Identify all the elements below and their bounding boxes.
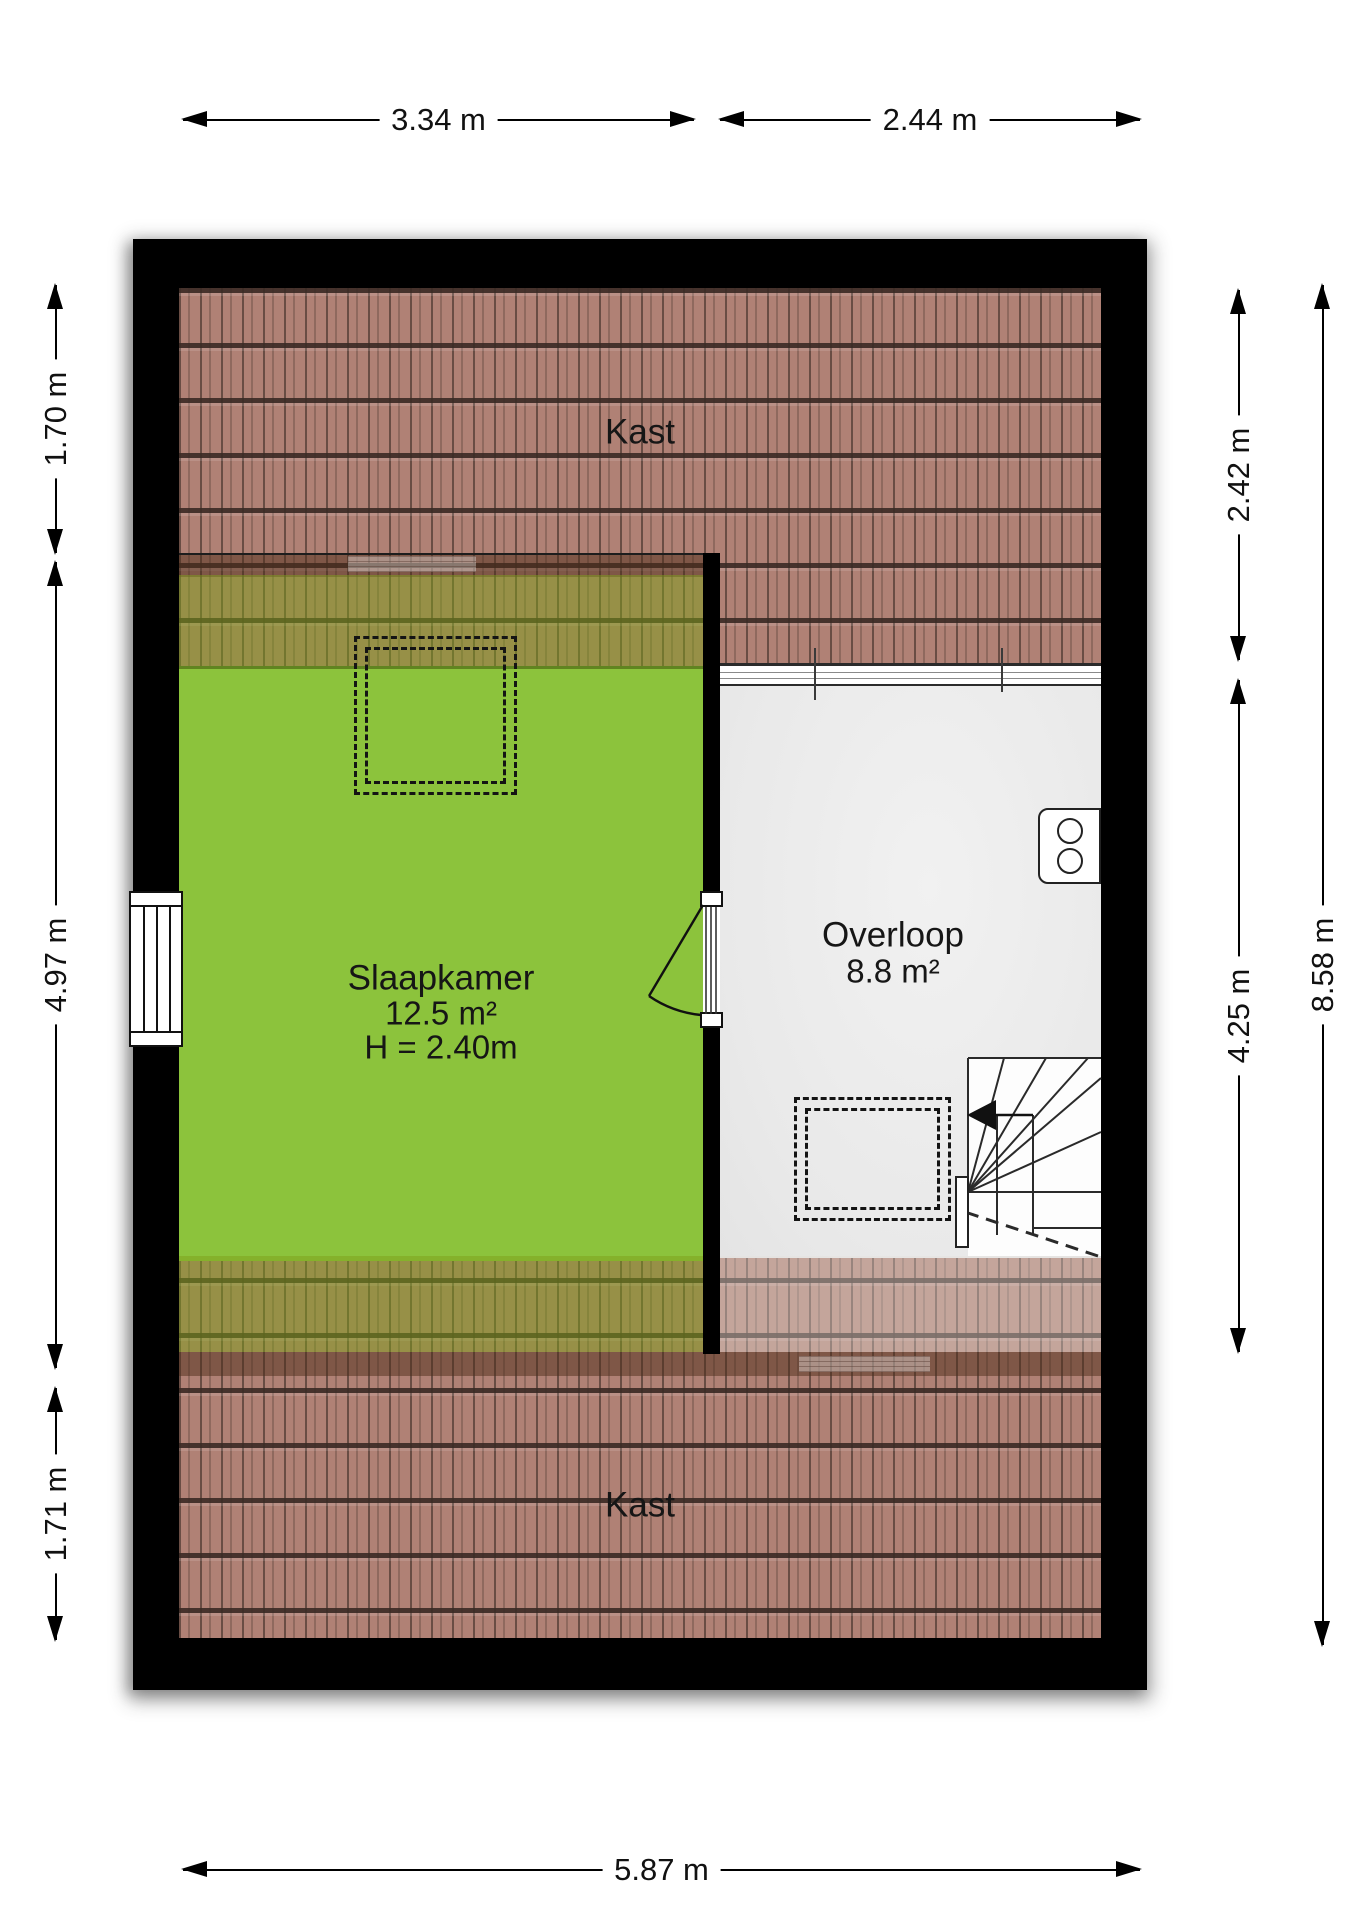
room-area-overloop: 8.8 m² <box>846 954 940 989</box>
dimension-label: 3.34 m <box>379 100 498 140</box>
window-cap <box>131 905 181 907</box>
arrowhead <box>47 283 63 309</box>
knee-wall-line <box>720 678 1101 679</box>
dimension-label: 1.71 m <box>36 1455 76 1574</box>
room-label-kast-top: Kast <box>605 415 675 450</box>
radiator-icon <box>1038 808 1101 884</box>
dashed-roof-window-outline-overloop <box>794 1097 951 1221</box>
arrowhead <box>47 560 63 586</box>
room-label-kast-bottom: Kast <box>605 1488 675 1523</box>
arrowhead <box>181 111 207 127</box>
knee-wall-tick <box>814 648 816 700</box>
room-label-overloop: Overloop <box>822 918 964 953</box>
room-label-slaapkamer: Slaapkamer <box>348 961 535 996</box>
dimension-label: 4.25 m <box>1219 957 1259 1076</box>
roof-vent-bottom <box>799 1356 930 1372</box>
window-mullion <box>156 907 158 1031</box>
knee-wall-band <box>720 663 1101 686</box>
window-mullion <box>169 907 171 1031</box>
door-jamb <box>700 1012 723 1028</box>
arrowhead <box>47 1616 63 1642</box>
dimension-label: 5.87 m <box>602 1850 721 1890</box>
arrowhead <box>1314 283 1330 309</box>
dimension-left-middle: 4.97 m <box>55 562 57 1368</box>
dimension-right-middle: 4.25 m <box>1238 680 1240 1352</box>
dimension-right-top: 2.42 m <box>1238 290 1240 660</box>
dimension-bottom: 5.87 m <box>183 1869 1140 1871</box>
arrowhead <box>47 1386 63 1412</box>
roof-overlap-dark-strip-bottom <box>179 1352 1101 1376</box>
room-height-slaapkamer: H = 2.40m <box>364 1030 517 1065</box>
dimension-top-right: 2.44 m <box>720 119 1140 121</box>
roof-overlap-bottom-left <box>179 1256 706 1352</box>
arrowhead <box>1314 1621 1330 1647</box>
floorplan-page: Kast Slaapkamer 12.5 m² H = 2.40m Overlo… <box>0 0 1358 1920</box>
dashed-roof-window-inner <box>365 647 506 784</box>
dimension-left-bottom: 1.71 m <box>55 1388 57 1640</box>
dimension-label: 2.42 m <box>1219 416 1259 535</box>
window-cap <box>131 1031 181 1033</box>
radiator-knob <box>1057 818 1083 844</box>
arrowhead <box>1230 1328 1246 1354</box>
dimension-left-top: 1.70 m <box>55 285 57 553</box>
dimension-right-overall: 8.58 m <box>1322 285 1324 1645</box>
knee-wall-tick <box>1001 648 1003 692</box>
arrowhead <box>670 111 696 127</box>
window-mullion <box>143 907 145 1031</box>
arrowhead <box>1116 1861 1142 1877</box>
dashed-roof-window-outline-slaapkamer <box>354 636 517 795</box>
dimension-top-left: 3.34 m <box>183 119 694 121</box>
arrowhead <box>1230 636 1246 662</box>
arrowhead <box>47 529 63 555</box>
room-area-slaapkamer: 12.5 m² <box>385 996 497 1031</box>
arrowhead <box>718 111 744 127</box>
door-opening <box>703 893 720 1028</box>
knee-wall-line <box>720 672 1101 673</box>
arrowhead <box>1230 288 1246 314</box>
arrowhead <box>47 1344 63 1370</box>
radiator-knob <box>1057 848 1083 874</box>
roof-overlap-bottom-right <box>706 1256 1101 1352</box>
dimension-label: 1.70 m <box>36 360 76 479</box>
dashed-roof-window-inner <box>805 1108 940 1210</box>
dimension-label: 2.44 m <box>871 100 990 140</box>
door-jamb <box>700 891 723 907</box>
staircase-area <box>968 1058 1101 1256</box>
window-icon <box>129 891 183 1047</box>
dimension-label: 8.58 m <box>1303 906 1343 1025</box>
arrowhead <box>181 1861 207 1877</box>
roof-vent-top <box>348 556 476 572</box>
dimension-label: 4.97 m <box>36 906 76 1025</box>
arrowhead <box>1116 111 1142 127</box>
arrowhead <box>1230 678 1246 704</box>
